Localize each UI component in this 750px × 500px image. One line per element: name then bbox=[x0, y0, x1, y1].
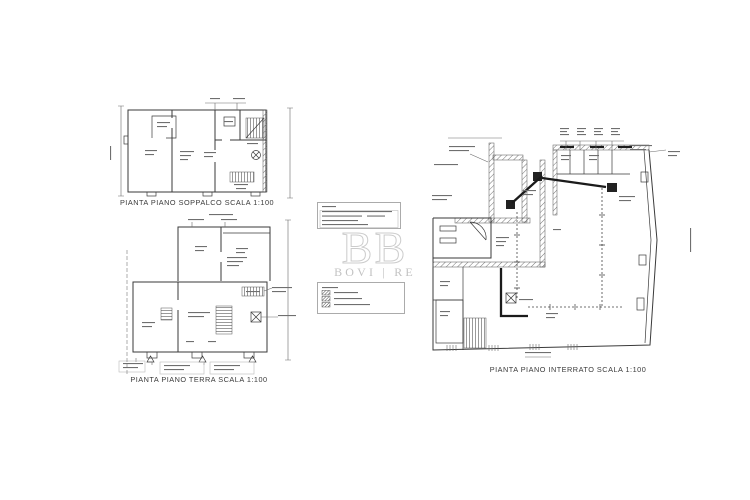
micro-text-bar bbox=[224, 121, 233, 122]
micro-text-bar bbox=[523, 194, 533, 195]
plan-title-interrato: PIANTA PIANO INTERRATO SCALA 1:100 bbox=[490, 365, 647, 374]
micro-text-bar bbox=[188, 219, 204, 220]
micro-text-bar bbox=[367, 216, 385, 217]
micro-text-bar bbox=[496, 245, 504, 246]
micro-text-bar bbox=[246, 291, 260, 292]
micro-text-bar bbox=[233, 98, 245, 99]
micro-text-bar bbox=[234, 184, 248, 185]
micro-text-bar bbox=[227, 261, 243, 262]
micro-text-bar bbox=[611, 128, 620, 129]
micro-text-bar bbox=[209, 214, 233, 215]
micro-text-bar bbox=[214, 365, 240, 366]
micro-text-bar bbox=[180, 159, 188, 160]
plan-title-soppalco: PIANTA PIANO SOPPALCO SCALA 1:100 bbox=[120, 198, 274, 207]
micro-text-bar bbox=[221, 219, 237, 220]
micro-text-bar bbox=[432, 195, 452, 196]
circle-x-symbol bbox=[252, 151, 261, 160]
micro-text-bar bbox=[272, 287, 292, 288]
micro-text-bar bbox=[204, 156, 213, 157]
ladder-soppalco bbox=[230, 172, 254, 182]
micro-text-bar bbox=[322, 224, 368, 225]
micro-text-bar bbox=[440, 285, 448, 286]
micro-text-bar bbox=[668, 151, 680, 152]
micro-text-bar bbox=[180, 155, 191, 156]
micro-text-bar bbox=[611, 134, 620, 135]
micro-text-bar bbox=[227, 257, 247, 258]
stair-interrato bbox=[464, 318, 486, 348]
micro-text-bar bbox=[142, 326, 152, 327]
micro-text-bar bbox=[157, 122, 170, 123]
micro-text-bar bbox=[546, 313, 558, 314]
micro-text-bar bbox=[334, 292, 358, 293]
floor-plan-soppalco: PIANTA PIANO SOPPALCO SCALA 1:100 bbox=[118, 103, 293, 207]
micro-text-bar bbox=[272, 291, 286, 292]
legend-swatch bbox=[322, 297, 330, 302]
micro-text-bar bbox=[589, 155, 599, 156]
brand-wordmark: BOVI | RE bbox=[334, 265, 416, 279]
micro-text-bar bbox=[577, 128, 586, 129]
micro-text-bar bbox=[145, 154, 154, 155]
micro-text-bar bbox=[180, 151, 194, 152]
micro-text-bar bbox=[322, 287, 338, 288]
micro-text-bar bbox=[440, 281, 450, 282]
micro-text-bar bbox=[186, 341, 194, 342]
micro-text-bar bbox=[523, 190, 536, 191]
micro-text-bar bbox=[227, 265, 239, 266]
micro-text-bar bbox=[594, 128, 603, 129]
micro-text-bar bbox=[236, 188, 246, 189]
micro-text-bar bbox=[630, 149, 646, 150]
micro-text-bar bbox=[204, 152, 216, 153]
micro-text-bar bbox=[334, 298, 362, 299]
micro-text-bar bbox=[322, 211, 392, 212]
micro-text-bar bbox=[690, 228, 691, 252]
cad-drawing: B B BOVI | RE bbox=[0, 0, 750, 500]
micro-text-bar bbox=[496, 237, 509, 238]
square-x-symbol-interrato bbox=[506, 293, 516, 303]
junction-box bbox=[607, 183, 617, 192]
micro-text-bar bbox=[440, 315, 448, 316]
micro-text-bar bbox=[519, 299, 533, 300]
micro-text-bar bbox=[611, 131, 618, 132]
micro-text-bar bbox=[214, 369, 234, 370]
micro-text-bar bbox=[334, 304, 370, 305]
micro-text-bar bbox=[164, 369, 184, 370]
plan-title-terra: PIANTA PIANO TERRA SCALA 1:100 bbox=[130, 375, 267, 384]
micro-text-bar bbox=[195, 250, 204, 251]
micro-text-bar bbox=[525, 352, 551, 353]
drawing-sheet: B B BOVI | RE bbox=[0, 0, 750, 500]
micro-text-bar bbox=[236, 248, 248, 249]
micro-text-bar bbox=[577, 131, 584, 132]
micro-text-bar bbox=[577, 134, 586, 135]
micro-text-bar bbox=[434, 164, 458, 165]
micro-text-bar bbox=[546, 317, 555, 318]
micro-text-bar bbox=[322, 216, 362, 217]
stair-terra-main bbox=[216, 306, 232, 334]
micro-text-bar bbox=[236, 252, 245, 253]
square-x-symbol-terra bbox=[251, 312, 278, 322]
micro-text-bar bbox=[208, 341, 216, 342]
micro-text-bar bbox=[123, 363, 143, 364]
micro-text-bar bbox=[432, 199, 447, 200]
micro-text-bar bbox=[589, 159, 597, 160]
micro-text-bar bbox=[496, 241, 506, 242]
service-lines bbox=[514, 188, 622, 310]
micro-text-bar bbox=[560, 134, 569, 135]
micro-text-bar bbox=[440, 311, 450, 312]
micro-text-bar bbox=[278, 315, 296, 316]
micro-text-bar bbox=[142, 322, 155, 323]
micro-text-bar bbox=[594, 131, 601, 132]
micro-text-bar bbox=[110, 146, 111, 160]
micro-text-bar bbox=[561, 155, 571, 156]
micro-text-bar bbox=[561, 159, 569, 160]
micro-text-bar bbox=[195, 246, 207, 247]
micro-text-bar bbox=[553, 229, 561, 230]
floor-plan-terra: PIANTA PIANO TERRA SCALA 1:100 bbox=[119, 220, 291, 384]
micro-text-bar bbox=[560, 128, 569, 129]
legend-swatch bbox=[322, 303, 330, 308]
micro-text-bar bbox=[157, 126, 167, 127]
micro-text-bar bbox=[449, 150, 469, 151]
legend-swatch bbox=[322, 291, 330, 296]
floor-plan-interrato: PIANTA PIANO INTERRATO SCALA 1:100 bbox=[433, 138, 666, 374]
door-markers-terra bbox=[147, 356, 256, 362]
micro-text-bar bbox=[594, 134, 603, 135]
micro-text-bar bbox=[668, 155, 677, 156]
micro-text-bar bbox=[630, 145, 652, 146]
micro-text-bar bbox=[619, 200, 631, 201]
micro-text-bar bbox=[164, 365, 190, 366]
micro-text-bar bbox=[322, 206, 336, 207]
brand-watermark: B B BOVI | RE bbox=[334, 222, 416, 279]
micro-text-bar bbox=[145, 150, 157, 151]
micro-text-bar bbox=[247, 143, 258, 144]
micro-text-bar bbox=[619, 196, 635, 197]
micro-text-bar bbox=[210, 98, 220, 99]
micro-text-bar bbox=[188, 312, 210, 313]
micro-text-bar bbox=[449, 146, 475, 147]
micro-text-bar bbox=[123, 367, 138, 368]
micro-text-bar bbox=[560, 131, 567, 132]
micro-text-bar bbox=[322, 220, 358, 221]
micro-text-bar bbox=[188, 316, 204, 317]
